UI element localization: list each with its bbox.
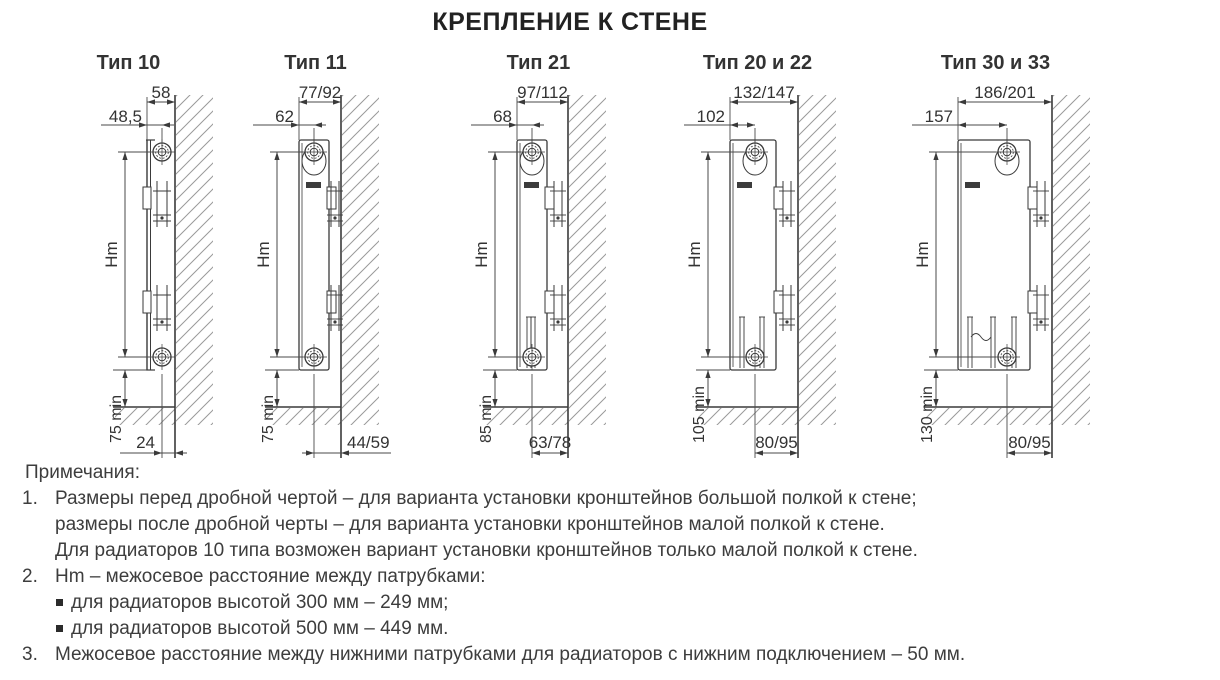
radiator-drawing: 132/147102Hm105 min80/95 [628,85,853,465]
dimension-label: Hm [913,241,932,267]
radiator-drawing: 186/201157Hm130 min80/95 [882,85,1107,465]
dimension-label: 75 min [260,395,277,443]
dimension-label: 48,5 [109,107,142,126]
note-item: 2. Hm – межосевое расстояние между патру… [0,564,1220,590]
dimension-label: Hm [472,241,491,267]
radiator-drawing: 97/11268Hm85 min63/78 [398,85,623,465]
diagram-title: Тип 21 [426,52,651,75]
dimension-label: 186/201 [974,85,1035,102]
note-number: 2. [22,564,50,590]
dimension-label: 105 min [691,386,708,443]
dimension-label: 58 [152,85,171,102]
note-line: Hm – межосевое расстояние между патрубка… [55,566,486,587]
diagram-tip-30-33: Тип 30 и 33186/201157Hm130 min80/95 [882,85,1107,480]
dimension-label: 80/95 [1008,433,1051,452]
note-line: для радиаторов высотой 500 мм – 449 мм. [71,618,448,639]
dimension-label: 80/95 [755,433,798,452]
diagram-tip-21: Тип 2197/11268Hm85 min63/78 [398,85,623,480]
dimension-label: 102 [697,107,725,126]
dimension-label: 75 min [108,395,125,443]
dimension-label: 130 min [919,386,936,443]
radiator-drawing: 77/9262Hm75 min44/59 [171,85,396,465]
note-item: для радиаторов высотой 300 мм – 249 мм; [0,590,1220,616]
note-item: размеры после дробной черты – для вариан… [0,512,1220,538]
diagram-tip-20-22: Тип 20 и 22132/147102Hm105 min80/95 [628,85,853,480]
bullet-icon [56,625,63,632]
dimension-label: 44/59 [347,433,390,452]
note-item: для радиаторов высотой 500 мм – 449 мм. [0,616,1220,642]
notes-heading: Примечания: [25,460,1220,486]
diagram-title: Тип 11 [203,52,428,75]
dimension-label: 62 [275,107,294,126]
note-item: 1. Размеры перед дробной чертой – для ва… [0,486,1220,512]
dimension-label: 157 [925,107,953,126]
dimension-label: 77/92 [299,85,342,102]
bullet-icon [56,599,63,606]
dimension-label: 97/112 [517,85,568,102]
dimension-label: 24 [136,433,155,452]
page-title: КРЕПЛЕНИЕ К СТЕНЕ [0,8,1140,37]
diagram-tip-11: Тип 1177/9262Hm75 min44/59 [171,85,396,480]
note-number: 3. [22,642,50,668]
dimension-label: Hm [254,241,273,267]
note-line: Для радиаторов 10 типа возможен вариант … [55,540,918,561]
note-item: Для радиаторов 10 типа возможен вариант … [0,538,1220,564]
dimension-label: 132/147 [733,85,794,102]
dimension-label: 85 min [478,395,495,443]
notes-section: Примечания: 1. Размеры перед дробной чер… [0,460,1220,668]
diagram-title: Тип 20 и 22 [645,52,870,75]
note-line: для радиаторов высотой 300 мм – 249 мм; [71,592,448,613]
note-item: 3. Межосевое расстояние между нижними па… [0,642,1220,668]
diagrams-row: Тип 105848,5Hm75 min24Тип 1177/9262Hm75 … [0,85,1220,485]
note-line: Размеры перед дробной чертой – для вариа… [55,488,917,509]
diagram-title: Тип 30 и 33 [883,52,1108,75]
note-line: Межосевое расстояние между нижними патру… [55,644,965,665]
note-line: размеры после дробной черты – для вариан… [55,514,885,535]
dimension-label: Hm [102,241,121,267]
dimension-label: 63/78 [529,433,572,452]
page: КРЕПЛЕНИЕ К СТЕНЕ Тип 105848,5Hm75 min24… [0,0,1220,680]
note-number: 1. [22,486,50,512]
dimension-label: 68 [493,107,512,126]
dimension-label: Hm [685,241,704,267]
